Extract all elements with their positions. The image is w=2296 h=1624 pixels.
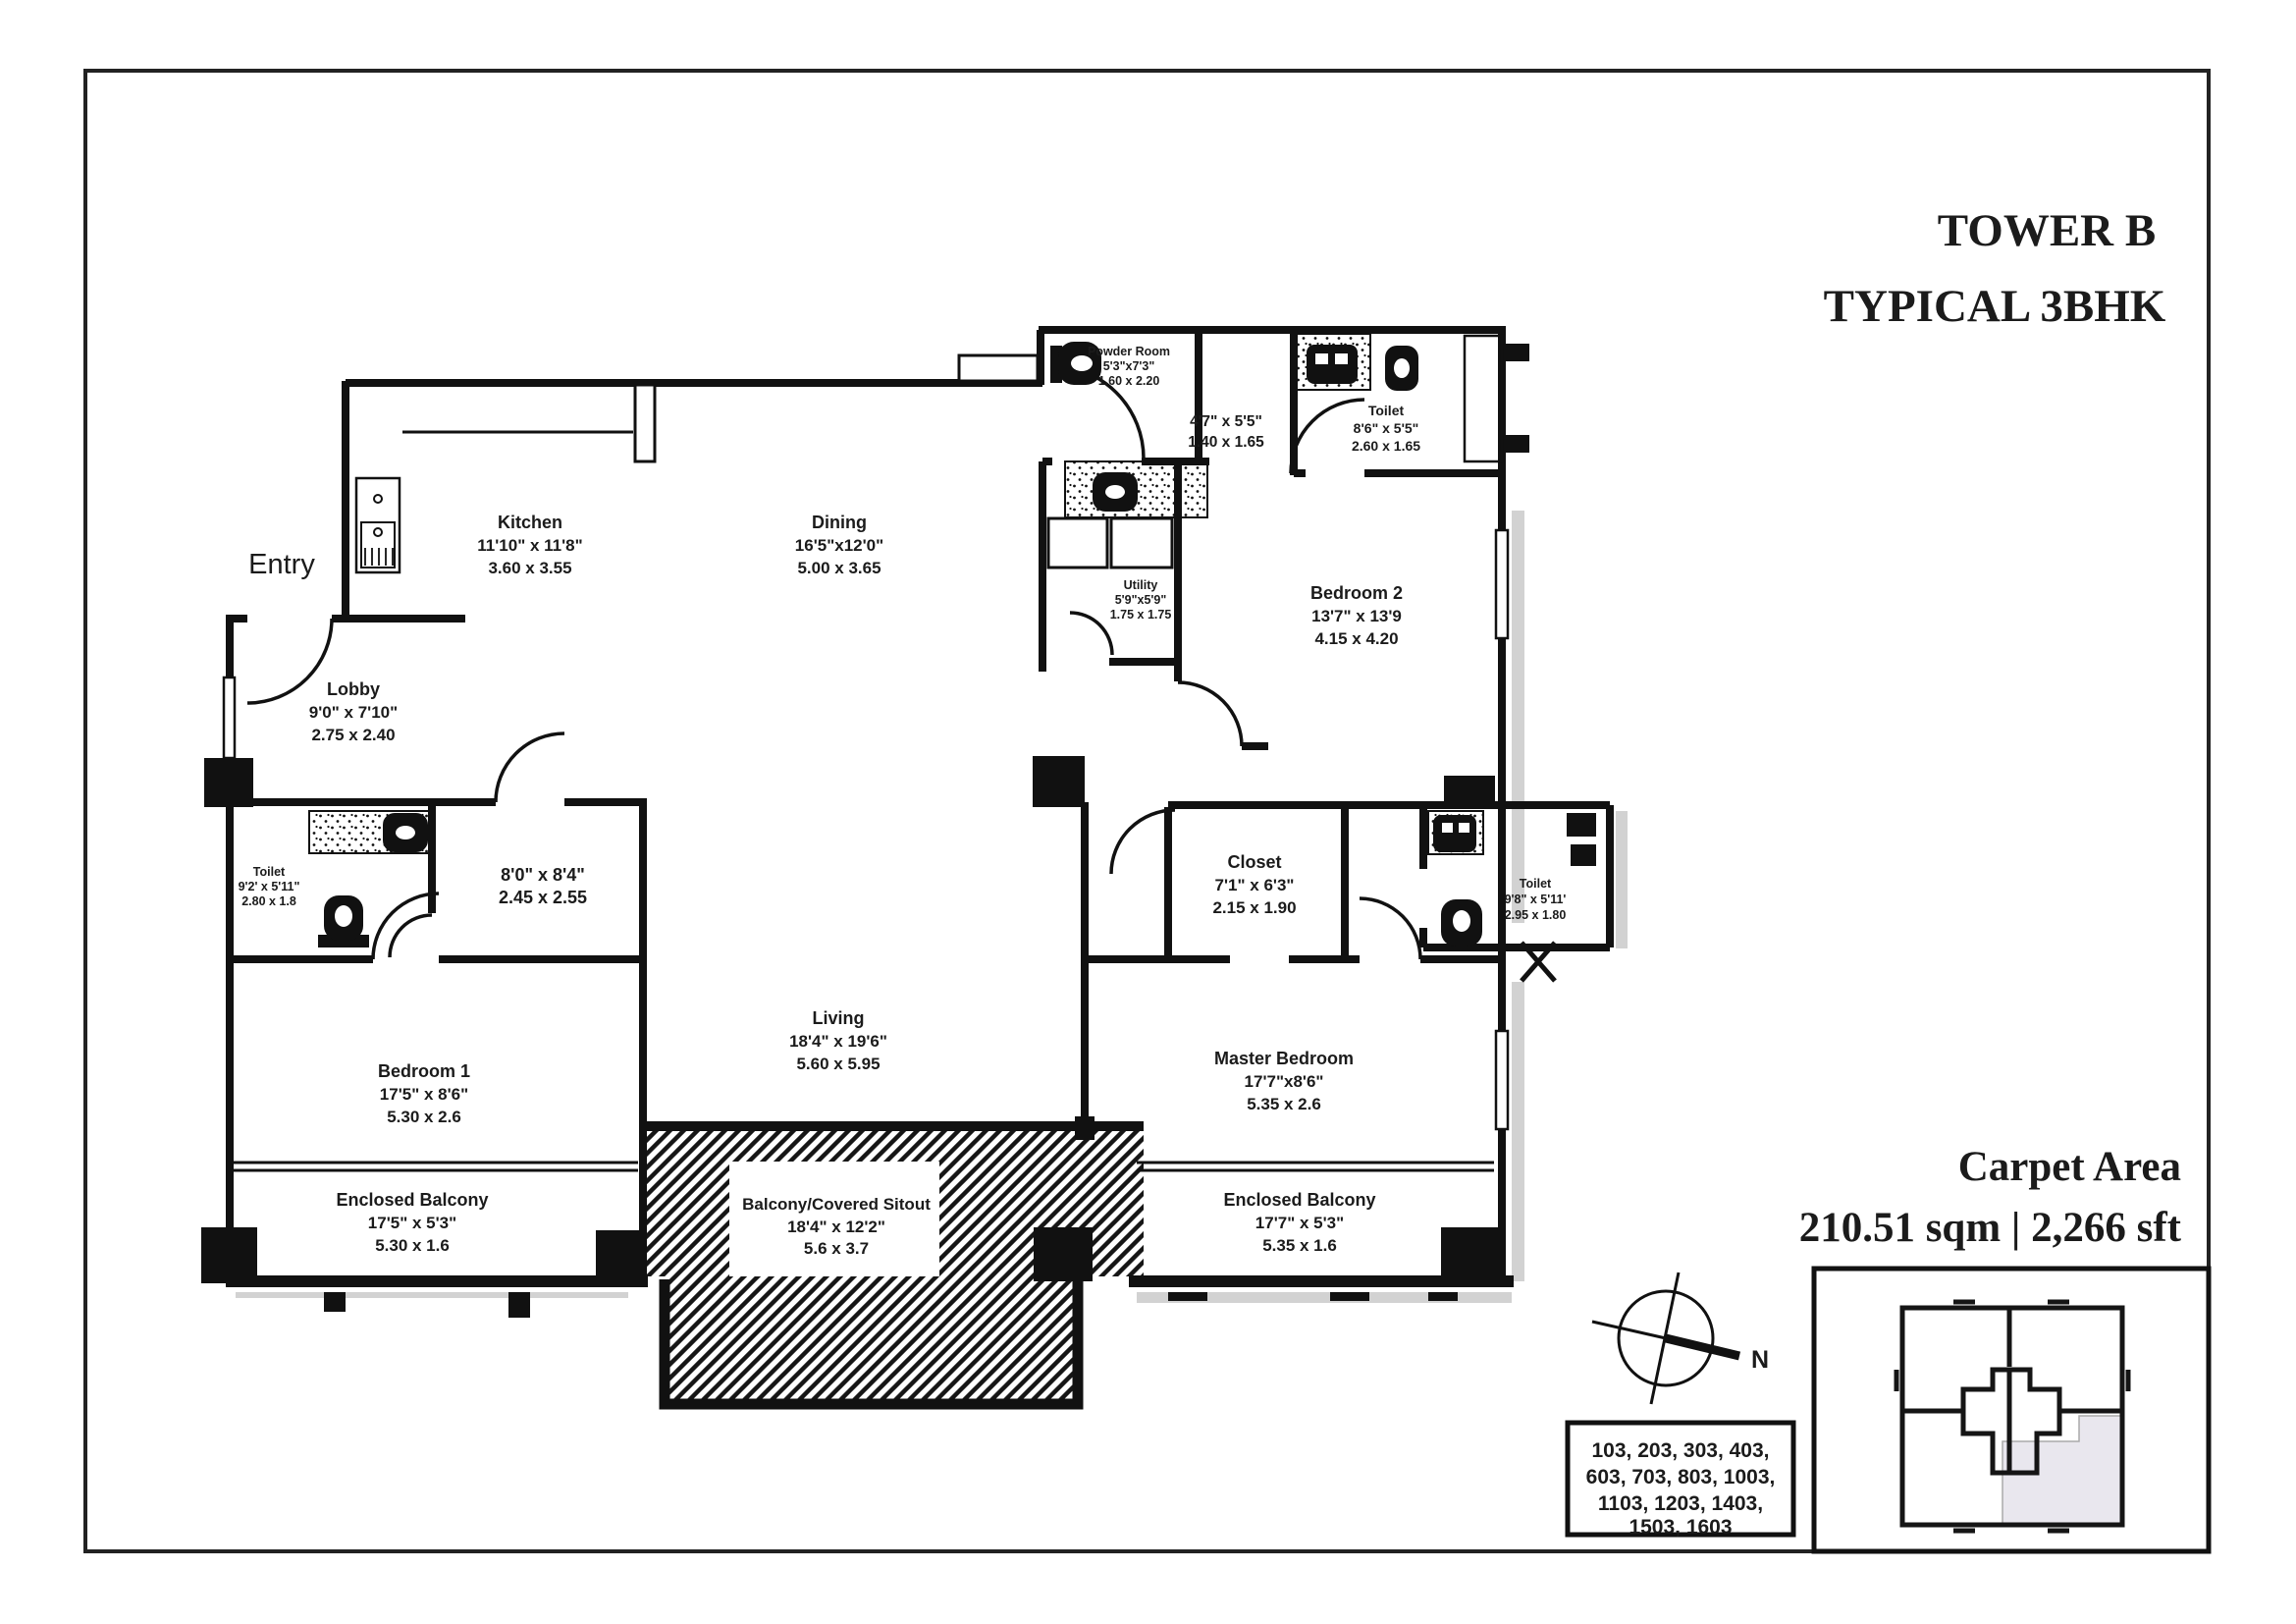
unit-numbers-line1: 103, 203, 303, 403, — [1592, 1439, 1770, 1462]
svg-text:2.95 x 1.80: 2.95 x 1.80 — [1505, 908, 1567, 922]
svg-text:17'5" x 8'6": 17'5" x 8'6" — [380, 1085, 468, 1104]
svg-text:7'1" x 6'3": 7'1" x 6'3" — [1215, 876, 1295, 894]
interior-lines — [224, 336, 1555, 1170]
svg-text:2.75 x 2.40: 2.75 x 2.40 — [311, 726, 395, 744]
svg-text:1.75 x 1.75: 1.75 x 1.75 — [1110, 608, 1172, 622]
svg-text:Enclosed Balcony: Enclosed Balcony — [1223, 1190, 1375, 1210]
svg-text:5'9"x5'9": 5'9"x5'9" — [1115, 593, 1167, 607]
svg-text:11'10" x 11'8": 11'10" x 11'8" — [477, 536, 582, 555]
room-label-kitchen: Kitchen 11'10" x 11'8" 3.60 x 3.55 — [477, 513, 582, 577]
compass-icon: N — [1592, 1272, 1769, 1404]
svg-text:5.35 x 2.6: 5.35 x 2.6 — [1247, 1095, 1321, 1113]
svg-text:Dining: Dining — [812, 513, 867, 532]
svg-text:2.45 x 2.55: 2.45 x 2.55 — [499, 888, 587, 907]
svg-text:5.60 x 5.95: 5.60 x 5.95 — [796, 1055, 880, 1073]
floor-plan-page: Kitchen 11'10" x 11'8" 3.60 x 3.55 Dinin… — [0, 0, 2296, 1624]
svg-text:17'7" x 5'3": 17'7" x 5'3" — [1255, 1214, 1344, 1232]
entry-label: Entry — [248, 549, 315, 580]
vanity-counters — [309, 334, 1483, 854]
unit-numbers-line3: 1103, 1203, 1403, — [1598, 1492, 1763, 1515]
svg-text:8'0" x 8'4": 8'0" x 8'4" — [501, 865, 585, 885]
compass-north-label: N — [1751, 1346, 1769, 1374]
key-plan — [1814, 1269, 2209, 1551]
room-label-balcony-right: Enclosed Balcony 17'7" x 5'3" 5.35 x 1.6 — [1223, 1190, 1375, 1255]
svg-text:8'6" x 5'5": 8'6" x 5'5" — [1354, 420, 1419, 436]
title-line1: TOWER B — [1938, 205, 2156, 256]
floor-plan-drawing: Kitchen 11'10" x 11'8" 3.60 x 3.55 Dinin… — [0, 0, 2296, 1624]
unit-numbers-line2: 603, 703, 803, 1003, — [1586, 1466, 1776, 1489]
svg-text:9'0" x 7'10": 9'0" x 7'10" — [309, 703, 398, 722]
room-label-bedroom1: Bedroom 1 17'5" x 8'6" 5.30 x 2.6 — [378, 1061, 470, 1126]
svg-text:4'7" x 5'5": 4'7" x 5'5" — [1190, 413, 1262, 430]
svg-text:2.15 x 1.90: 2.15 x 1.90 — [1212, 898, 1296, 917]
kitchen-sink-icon — [356, 478, 400, 572]
room-label-utility: Utility 5'9"x5'9" 1.75 x 1.75 — [1110, 578, 1172, 622]
svg-text:Living: Living — [813, 1008, 865, 1028]
svg-text:Enclosed Balcony: Enclosed Balcony — [336, 1190, 488, 1210]
svg-text:Bedroom 1: Bedroom 1 — [378, 1061, 470, 1081]
room-label-living: Living 18'4" x 19'6" 5.60 x 5.95 — [789, 1008, 887, 1073]
svg-text:Closet: Closet — [1227, 852, 1281, 872]
svg-text:9'8" x 5'11': 9'8" x 5'11' — [1505, 893, 1567, 906]
room-label-closet: Closet 7'1" x 6'3" 2.15 x 1.90 — [1212, 852, 1296, 917]
title-line2: TYPICAL 3BHK — [1824, 281, 2166, 332]
svg-text:Master Bedroom: Master Bedroom — [1214, 1049, 1354, 1068]
room-label-balcony-left: Enclosed Balcony 17'5" x 5'3" 5.30 x 1.6 — [336, 1190, 488, 1255]
svg-text:4.15 x 4.20: 4.15 x 4.20 — [1314, 629, 1398, 648]
svg-text:18'4" x 12'2": 18'4" x 12'2" — [787, 1218, 885, 1236]
room-label-dining: Dining 16'5"x12'0" 5.00 x 3.65 — [795, 513, 883, 577]
svg-text:Balcony/Covered Sitout: Balcony/Covered Sitout — [742, 1195, 931, 1214]
carpet-area-label: Carpet Area — [1958, 1144, 2181, 1190]
svg-text:2.80 x 1.8: 2.80 x 1.8 — [241, 894, 296, 908]
svg-text:Bedroom 2: Bedroom 2 — [1310, 583, 1403, 603]
svg-text:Kitchen: Kitchen — [498, 513, 562, 532]
svg-text:13'7" x 13'9: 13'7" x 13'9 — [1311, 607, 1402, 625]
svg-text:5.35 x 1.6: 5.35 x 1.6 — [1262, 1236, 1337, 1255]
svg-text:Powder Room: Powder Room — [1088, 345, 1170, 358]
plan-title: TOWER B TYPICAL 3BHK — [1824, 205, 2166, 332]
room-label-toilet-bed2: Toilet 8'6" x 5'5" 2.60 x 1.65 — [1352, 403, 1420, 454]
svg-text:5.30 x 1.6: 5.30 x 1.6 — [375, 1236, 450, 1255]
unit-numbers-line4: 1503, 1603 — [1629, 1516, 1732, 1539]
svg-text:17'5" x 5'3": 17'5" x 5'3" — [368, 1214, 456, 1232]
svg-text:5'3"x7'3": 5'3"x7'3" — [1103, 359, 1155, 373]
vanity-sink-icon — [1093, 472, 1138, 512]
svg-text:9'2' x 5'11": 9'2' x 5'11" — [239, 880, 300, 893]
carpet-area: Carpet Area 210.51 sqm | 2,266 sft — [1799, 1144, 2182, 1251]
svg-text:Lobby: Lobby — [327, 679, 380, 699]
svg-text:3.60 x 3.55: 3.60 x 3.55 — [488, 559, 571, 577]
room-label-master-bedroom: Master Bedroom 17'7"x8'6" 5.35 x 2.6 — [1214, 1049, 1354, 1113]
carpet-area-value: 210.51 sqm | 2,266 sft — [1799, 1205, 2182, 1251]
svg-text:1.40 x 1.65: 1.40 x 1.65 — [1188, 434, 1264, 451]
svg-text:1.60 x 2.20: 1.60 x 2.20 — [1098, 374, 1160, 388]
room-label-dress-bed1: 8'0" x 8'4" 2.45 x 2.55 — [499, 865, 587, 907]
svg-text:2.60 x 1.65: 2.60 x 1.65 — [1352, 438, 1420, 454]
master-toilet-fixtures — [1433, 815, 1482, 947]
room-label-toilet-bed1: Toilet 9'2' x 5'11" 2.80 x 1.8 — [239, 865, 300, 908]
svg-text:Toilet: Toilet — [1368, 403, 1405, 418]
svg-text:5.6 x 3.7: 5.6 x 3.7 — [804, 1239, 869, 1258]
svg-text:Toilet: Toilet — [253, 865, 286, 879]
room-label-lobby: Lobby 9'0" x 7'10" 2.75 x 2.40 — [309, 679, 398, 744]
svg-text:17'7"x8'6": 17'7"x8'6" — [1245, 1072, 1324, 1091]
room-label-bedroom2: Bedroom 2 13'7" x 13'9 4.15 x 4.20 — [1310, 583, 1403, 648]
svg-text:Toilet: Toilet — [1520, 877, 1552, 891]
svg-text:16'5"x12'0": 16'5"x12'0" — [795, 536, 883, 555]
svg-text:18'4" x 19'6": 18'4" x 19'6" — [789, 1032, 887, 1051]
svg-text:5.30 x 2.6: 5.30 x 2.6 — [387, 1108, 461, 1126]
svg-text:5.00 x 3.65: 5.00 x 3.65 — [797, 559, 881, 577]
svg-text:Utility: Utility — [1124, 578, 1158, 592]
unit-numbers-box: 103, 203, 303, 403, 603, 703, 803, 1003,… — [1568, 1423, 1793, 1539]
